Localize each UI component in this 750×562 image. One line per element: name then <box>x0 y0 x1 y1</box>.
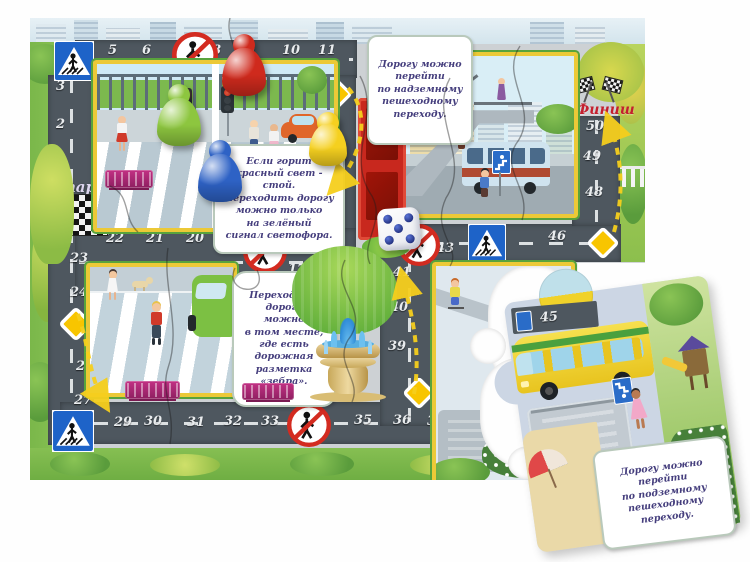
track-cell: 41 <box>393 266 411 279</box>
tree-left <box>30 144 74 264</box>
rule-card-underpass: Дорогу можно перейти по подземному пешех… <box>592 435 737 551</box>
bench <box>242 383 294 400</box>
track-cell: 3 <box>56 80 65 93</box>
track-cell: 22 <box>106 232 124 245</box>
priority-road-sign <box>402 376 436 410</box>
loose-puzzle-piece[interactable]: 45 <box>503 275 741 553</box>
dog-figure <box>132 277 154 291</box>
track-cell: 6 <box>142 44 151 57</box>
priority-road-sign <box>586 226 620 260</box>
child-figure <box>148 303 164 347</box>
track-cell: 21 <box>146 232 164 245</box>
track-cell: 10 <box>282 44 300 57</box>
green-pawn[interactable] <box>157 84 201 146</box>
pedestrian-crossing-sign <box>54 41 94 81</box>
blue-pawn[interactable] <box>198 140 242 202</box>
die-showing-five[interactable] <box>377 207 422 252</box>
finish-label: Финиш <box>576 102 635 118</box>
track-cell: 48 <box>585 186 603 199</box>
pedestrian-crossing-sign <box>468 224 506 262</box>
bench <box>105 170 153 188</box>
child-scooter-figure <box>446 280 466 314</box>
track-cell: 29 <box>114 416 132 429</box>
track-cell: 50 <box>586 120 604 133</box>
car-green <box>186 275 233 345</box>
water-spray <box>340 318 356 344</box>
track-cell: 32 <box>224 415 242 428</box>
track-cell: 30 <box>144 415 162 428</box>
track-cell: 31 <box>187 416 205 429</box>
rule-card-overpass: Дорогу можно перейти по надземному пешех… <box>367 35 473 145</box>
finish-flags-icon <box>573 78 625 104</box>
pedestrian-crossing-sign <box>52 410 94 452</box>
track-cell: 49 <box>583 150 601 163</box>
bench <box>125 381 180 399</box>
track-cell: 2 <box>56 118 65 131</box>
rule-card-text: Дорогу можно перейти по надземному пешех… <box>377 59 462 121</box>
child-figure <box>115 116 129 152</box>
overpass-sign-icon <box>492 150 511 174</box>
track-cell: 11 <box>318 44 336 57</box>
track-cell: 23 <box>70 252 88 265</box>
track-cell: 35 <box>354 414 372 427</box>
rule-card-text: Дорогу можно перейти по подземному пешех… <box>618 457 710 529</box>
child-figure <box>106 271 120 303</box>
no-pedestrian-sign <box>287 403 331 447</box>
board-game-photo: 5 6 8 9 10 11 3 2 1 14 15 16 22 21 20 19… <box>0 0 750 562</box>
fountain <box>302 318 394 402</box>
red-pawn[interactable] <box>222 34 266 96</box>
playhouse <box>658 333 715 395</box>
girl-pink-figure <box>625 388 653 433</box>
yellow-pawn[interactable] <box>309 112 347 166</box>
track-cell: 46 <box>548 230 566 243</box>
person-figure <box>496 78 508 104</box>
track-cell: 20 <box>186 232 204 245</box>
track-cell: 36 <box>393 414 411 427</box>
child-figure <box>478 170 491 202</box>
picture-zebra-scene <box>86 263 237 397</box>
track-cell: 33 <box>261 415 279 428</box>
track-cell: 5 <box>108 44 117 57</box>
